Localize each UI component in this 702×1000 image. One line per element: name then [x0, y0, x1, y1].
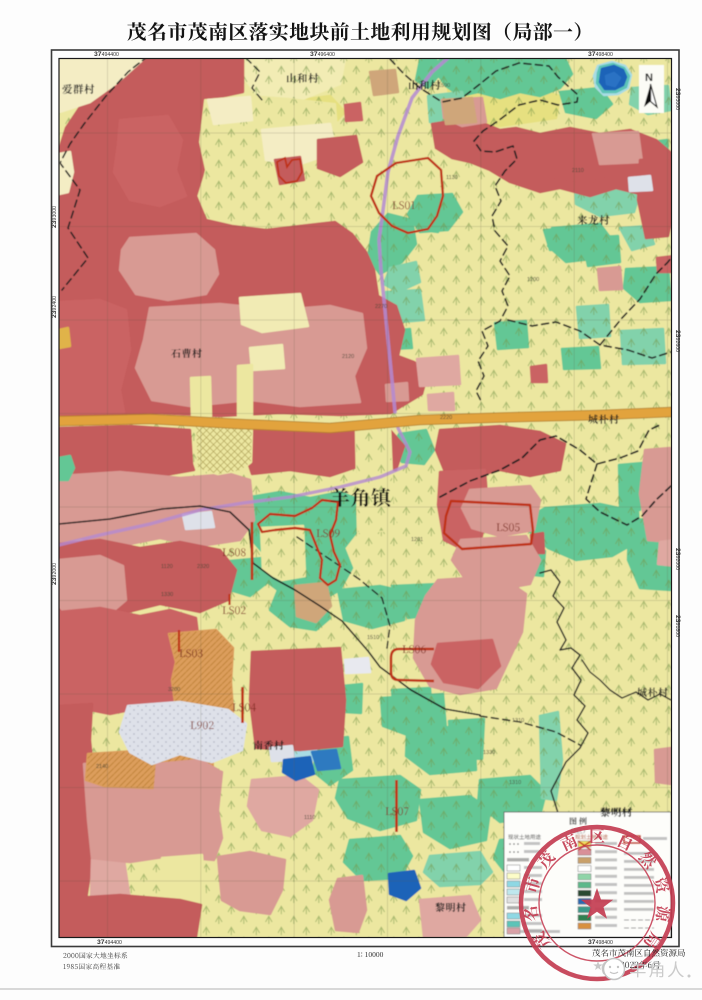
svg-text:3200: 3200	[168, 687, 180, 693]
svg-text:2392000: 2392000	[51, 563, 58, 585]
svg-text:1∶ 10000: 1∶ 10000	[357, 950, 384, 959]
svg-text:1590: 1590	[438, 83, 450, 89]
svg-text:2392000: 2392000	[674, 548, 681, 570]
svg-text:1201: 1201	[411, 537, 423, 543]
svg-text:2120: 2120	[342, 354, 354, 360]
svg-text:2391800: 2391800	[674, 615, 681, 637]
svg-text:37498400: 37498400	[588, 51, 613, 58]
svg-text:37498400: 37498400	[588, 939, 613, 946]
svg-text:37494400: 37494400	[97, 939, 122, 946]
svg-text:2320: 2320	[197, 564, 209, 570]
svg-text:1130: 1130	[446, 175, 458, 181]
svg-text:1310: 1310	[509, 780, 521, 786]
svg-text:1110: 1110	[304, 815, 315, 821]
svg-text:1510: 1510	[367, 635, 379, 641]
svg-text:2220: 2220	[440, 415, 452, 421]
svg-text:2270: 2270	[375, 304, 387, 310]
svg-text:N: N	[645, 72, 653, 84]
svg-text:2392600: 2392600	[674, 330, 681, 352]
svg-text:1330: 1330	[161, 592, 173, 598]
svg-text:2140: 2140	[96, 764, 108, 770]
svg-text:1120: 1120	[161, 564, 173, 570]
svg-text:1330: 1330	[483, 750, 495, 756]
svg-text:2393000: 2393000	[51, 206, 58, 228]
svg-text:37494400: 37494400	[94, 51, 119, 58]
svg-text:37496400: 37496400	[310, 51, 335, 58]
svg-text:2393000: 2393000	[674, 88, 681, 110]
svg-text:2392400: 2392400	[51, 296, 58, 318]
svg-text:1310: 1310	[512, 718, 524, 724]
svg-text:1200: 1200	[527, 277, 539, 283]
svg-text:2110: 2110	[572, 168, 584, 174]
